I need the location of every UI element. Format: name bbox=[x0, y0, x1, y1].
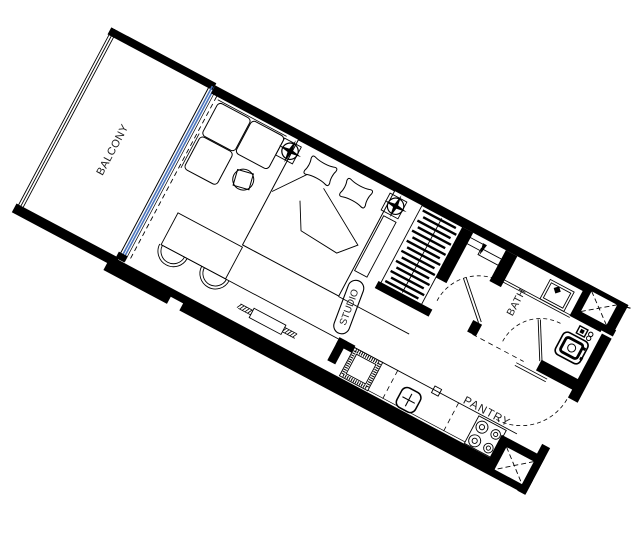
svg-text:PANTRY: PANTRY bbox=[461, 395, 512, 430]
svg-text:BALCONY: BALCONY bbox=[94, 122, 131, 177]
